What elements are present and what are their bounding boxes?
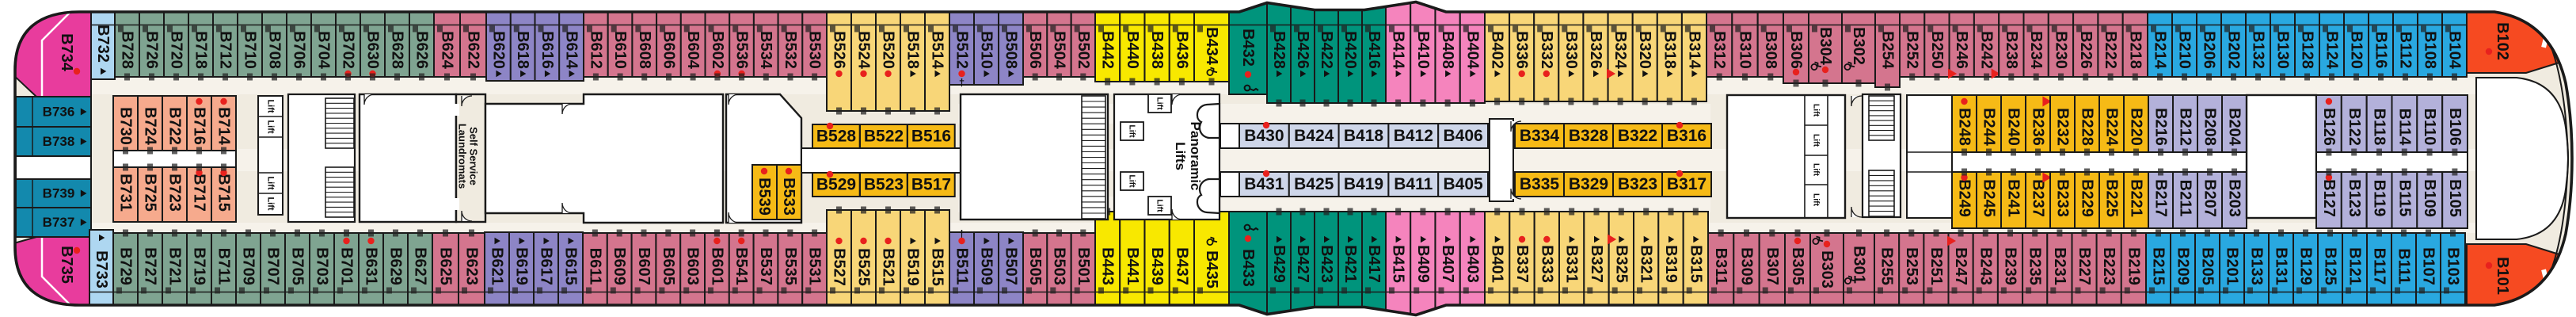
svg-text:B417: B417: [1365, 245, 1383, 283]
svg-text:B108: B108: [2422, 31, 2439, 69]
svg-text:B612: B612: [587, 31, 604, 69]
svg-text:B614: B614: [563, 31, 580, 70]
svg-text:B325: B325: [1612, 245, 1630, 283]
svg-text:B129: B129: [2297, 247, 2315, 285]
svg-text:B304: B304: [1817, 27, 1834, 66]
svg-text:B716: B716: [191, 107, 208, 145]
svg-text:B702: B702: [340, 31, 357, 69]
svg-text:B718: B718: [192, 31, 210, 69]
svg-text:B616: B616: [538, 31, 556, 69]
svg-text:Lift: Lift: [1155, 97, 1165, 110]
svg-text:B429: B429: [1270, 245, 1288, 283]
svg-text:B739: B739: [43, 186, 75, 201]
svg-text:B531: B531: [806, 247, 824, 285]
svg-text:B407: B407: [1439, 245, 1456, 283]
svg-text:B229: B229: [2079, 179, 2096, 217]
svg-text:B620: B620: [489, 31, 507, 69]
svg-text:B529: B529: [816, 176, 856, 194]
svg-text:B502: B502: [1075, 31, 1092, 69]
svg-text:B526: B526: [831, 31, 848, 69]
svg-text:B416: B416: [1365, 31, 1383, 69]
svg-text:B433: B433: [1239, 249, 1257, 287]
svg-text:B706: B706: [291, 31, 308, 69]
svg-text:B119: B119: [2371, 180, 2388, 217]
svg-text:B310: B310: [1737, 31, 1754, 69]
svg-text:B441: B441: [1124, 247, 1141, 285]
svg-text:B602: B602: [709, 31, 726, 69]
svg-text:B335: B335: [1520, 175, 1560, 193]
svg-text:B524: B524: [855, 31, 873, 70]
svg-text:B133: B133: [2248, 247, 2266, 285]
svg-text:B403: B403: [1463, 245, 1481, 283]
svg-text:B254: B254: [1879, 31, 1897, 70]
svg-text:Lift: Lift: [1812, 163, 1821, 177]
svg-text:B401: B401: [1489, 245, 1506, 283]
svg-text:B118: B118: [2371, 109, 2388, 146]
svg-text:B125: B125: [2322, 247, 2339, 285]
svg-text:B241: B241: [2005, 179, 2022, 217]
svg-text:B627: B627: [412, 247, 429, 285]
svg-text:B328: B328: [1569, 127, 1609, 145]
svg-text:B422: B422: [1318, 31, 1335, 69]
svg-text:B442: B442: [1099, 31, 1117, 69]
svg-text:B714: B714: [215, 107, 233, 146]
svg-text:B701: B701: [338, 247, 356, 285]
svg-text:B222: B222: [2102, 31, 2119, 69]
svg-text:B601: B601: [708, 247, 725, 285]
svg-text:B721: B721: [166, 247, 184, 285]
svg-text:B409: B409: [1414, 245, 1432, 283]
svg-text:B435: B435: [1203, 250, 1220, 288]
svg-text:B533: B533: [780, 178, 797, 216]
svg-text:B327: B327: [1588, 245, 1605, 283]
svg-text:B623: B623: [463, 247, 481, 285]
svg-text:B715: B715: [215, 174, 233, 212]
svg-text:B514: B514: [929, 31, 946, 70]
svg-text:B426: B426: [1294, 31, 1311, 69]
svg-text:B234: B234: [2027, 31, 2045, 70]
svg-text:B227: B227: [2076, 247, 2093, 285]
svg-text:B232: B232: [2054, 108, 2072, 146]
svg-text:B117: B117: [2371, 248, 2388, 285]
svg-text:B727: B727: [142, 247, 159, 285]
svg-text:B219: B219: [2125, 247, 2142, 285]
svg-text:B306: B306: [1787, 31, 1805, 69]
svg-text:B410: B410: [1414, 31, 1432, 69]
svg-text:B536: B536: [733, 31, 751, 69]
svg-text:B527: B527: [831, 248, 848, 286]
svg-text:B522: B522: [864, 128, 904, 146]
svg-text:B732: B732: [94, 25, 112, 63]
svg-text:B101: B101: [2494, 257, 2511, 295]
svg-text:B418: B418: [1344, 127, 1384, 145]
svg-text:B630: B630: [364, 31, 382, 69]
svg-text:B719: B719: [191, 247, 208, 285]
svg-text:B329: B329: [1569, 175, 1608, 193]
svg-text:B725: B725: [142, 174, 159, 212]
svg-text:B611: B611: [586, 248, 603, 285]
svg-text:B248: B248: [1956, 108, 1973, 146]
svg-text:B116: B116: [2372, 32, 2390, 69]
svg-text:B735: B735: [58, 246, 75, 284]
svg-text:B233: B233: [2054, 179, 2072, 217]
svg-text:B532: B532: [782, 31, 799, 69]
svg-text:B423: B423: [1318, 245, 1335, 283]
svg-text:Lift: Lift: [1155, 199, 1165, 212]
svg-text:B503: B503: [1051, 247, 1068, 285]
svg-text:B539: B539: [755, 178, 773, 216]
svg-text:B705: B705: [289, 247, 306, 285]
svg-text:B421: B421: [1341, 245, 1359, 283]
svg-text:Lift: Lift: [266, 120, 276, 133]
svg-text:B311: B311: [1712, 248, 1729, 285]
svg-text:B214: B214: [2152, 31, 2169, 70]
svg-text:B323: B323: [1618, 175, 1657, 193]
svg-text:Lift: Lift: [1128, 124, 1137, 138]
svg-text:B201: B201: [2224, 247, 2241, 285]
svg-text:Self ServiceLaundromats: Self ServiceLaundromats: [457, 124, 480, 189]
svg-text:B507: B507: [1003, 247, 1020, 285]
svg-text:B316: B316: [1667, 127, 1707, 145]
svg-text:B512: B512: [953, 31, 971, 69]
svg-text:B255: B255: [1878, 247, 1896, 285]
svg-text:B425: B425: [1294, 175, 1334, 193]
svg-text:B104: B104: [2446, 31, 2464, 70]
svg-text:B315: B315: [1687, 245, 1704, 283]
svg-text:B427: B427: [1294, 245, 1311, 283]
svg-text:B731: B731: [117, 174, 135, 212]
svg-text:B312: B312: [1710, 31, 1728, 69]
svg-text:B317: B317: [1667, 175, 1707, 193]
svg-text:B244: B244: [1981, 108, 1998, 147]
svg-text:B242: B242: [1978, 31, 1996, 69]
svg-text:B215: B215: [2150, 247, 2167, 285]
svg-text:B712: B712: [217, 31, 234, 69]
svg-text:B236: B236: [2030, 108, 2047, 146]
svg-text:B322: B322: [1618, 127, 1657, 145]
svg-text:B309: B309: [1738, 247, 1756, 285]
svg-text:B430: B430: [1244, 127, 1284, 145]
svg-text:B523: B523: [864, 176, 904, 194]
svg-text:B709: B709: [240, 247, 257, 285]
svg-text:B419: B419: [1344, 175, 1383, 193]
svg-text:B123: B123: [2346, 179, 2363, 217]
svg-text:B615: B615: [562, 247, 580, 285]
svg-text:B511: B511: [953, 248, 971, 285]
svg-text:B253: B253: [1903, 247, 1920, 285]
svg-text:B437: B437: [1173, 247, 1190, 285]
svg-text:B131: B131: [2273, 247, 2290, 285]
svg-text:B604: B604: [684, 31, 702, 70]
svg-text:B230: B230: [2053, 31, 2070, 69]
svg-text:B516: B516: [911, 128, 951, 146]
svg-text:B252: B252: [1904, 31, 1921, 69]
svg-text:B243: B243: [1977, 247, 1994, 285]
svg-text:B114: B114: [2395, 109, 2413, 147]
svg-text:B102: B102: [2494, 22, 2511, 60]
svg-text:B231: B231: [2051, 247, 2068, 285]
svg-text:B734: B734: [58, 33, 75, 72]
svg-text:B203: B203: [2226, 179, 2243, 217]
svg-text:B629: B629: [387, 247, 405, 285]
svg-text:B212: B212: [2177, 108, 2194, 146]
svg-text:B408: B408: [1439, 31, 1456, 69]
svg-text:B424: B424: [1294, 127, 1334, 145]
svg-text:B434: B434: [1203, 27, 1220, 66]
svg-text:B302: B302: [1850, 27, 1867, 65]
svg-text:B245: B245: [1981, 179, 1998, 217]
svg-text:B251: B251: [1927, 247, 1945, 285]
svg-text:B249: B249: [1956, 179, 1973, 217]
svg-text:B520: B520: [880, 31, 897, 69]
svg-text:B206: B206: [2201, 31, 2218, 69]
svg-text:B605: B605: [660, 247, 677, 285]
svg-text:B723: B723: [166, 174, 184, 212]
svg-text:B607: B607: [635, 247, 653, 285]
svg-text:B337: B337: [1513, 245, 1531, 283]
svg-text:Lift: Lift: [1812, 104, 1821, 117]
svg-text:B508: B508: [1003, 31, 1020, 69]
svg-text:B330: B330: [1562, 31, 1580, 69]
svg-text:B122: B122: [2346, 108, 2363, 146]
svg-text:B730: B730: [117, 107, 135, 145]
svg-text:B509: B509: [978, 247, 995, 285]
svg-text:B132: B132: [2250, 31, 2267, 69]
svg-text:B728: B728: [119, 31, 136, 69]
svg-text:B738: B738: [43, 134, 75, 149]
svg-text:B628: B628: [389, 31, 406, 69]
svg-text:B519: B519: [904, 248, 922, 286]
svg-text:B209: B209: [2175, 247, 2192, 285]
svg-text:B126: B126: [2320, 108, 2338, 146]
svg-text:B324: B324: [1611, 31, 1629, 70]
svg-text:B124: B124: [2323, 31, 2341, 70]
svg-text:B530: B530: [806, 31, 824, 69]
svg-text:B224: B224: [2103, 108, 2121, 147]
svg-text:B250: B250: [1928, 31, 1946, 69]
svg-text:B332: B332: [1538, 31, 1555, 69]
svg-text:Lift: Lift: [1128, 174, 1137, 188]
svg-text:B121: B121: [2346, 247, 2364, 285]
svg-text:B228: B228: [2079, 108, 2096, 146]
svg-text:B120: B120: [2348, 31, 2365, 69]
svg-text:B625: B625: [437, 247, 455, 285]
svg-text:B103: B103: [2445, 247, 2462, 285]
svg-text:B608: B608: [636, 31, 653, 69]
svg-text:B506: B506: [1026, 31, 1044, 69]
svg-text:B210: B210: [2176, 31, 2194, 69]
svg-text:B501: B501: [1075, 247, 1092, 285]
svg-text:Lift: Lift: [266, 197, 276, 210]
svg-text:B326: B326: [1587, 31, 1604, 69]
svg-text:B112: B112: [2397, 32, 2414, 69]
svg-text:B331: B331: [1563, 245, 1581, 283]
svg-text:B440: B440: [1124, 31, 1141, 69]
svg-text:B414: B414: [1390, 31, 1407, 70]
svg-text:B619: B619: [513, 247, 531, 285]
svg-text:B305: B305: [1789, 247, 1806, 285]
svg-text:B246: B246: [1953, 31, 1970, 69]
svg-text:†: †: [959, 77, 965, 89]
svg-text:B518: B518: [904, 31, 922, 69]
svg-text:B237: B237: [2030, 179, 2047, 217]
svg-text:B707: B707: [264, 247, 282, 285]
svg-text:B218: B218: [2126, 31, 2144, 69]
svg-text:B726: B726: [143, 31, 161, 69]
svg-text:B621: B621: [489, 247, 506, 285]
svg-text:B225: B225: [2103, 179, 2121, 217]
svg-text:B333: B333: [1538, 245, 1555, 283]
svg-text:B318: B318: [1661, 31, 1678, 69]
svg-text:B111: B111: [2395, 248, 2413, 285]
svg-text:B610: B610: [611, 31, 629, 69]
svg-text:B106: B106: [2446, 108, 2464, 146]
svg-text:Lift: Lift: [1812, 134, 1821, 147]
svg-text:B609: B609: [611, 247, 628, 285]
svg-text:B431: B431: [1244, 175, 1284, 193]
svg-text:B724: B724: [142, 107, 159, 146]
svg-text:B631: B631: [363, 247, 380, 285]
svg-text:B235: B235: [2026, 247, 2044, 285]
svg-text:B420: B420: [1341, 31, 1359, 69]
svg-text:B535: B535: [782, 247, 799, 285]
svg-text:Lift: Lift: [1812, 193, 1821, 207]
svg-text:B301: B301: [1851, 246, 1868, 284]
svg-text:B319: B319: [1662, 245, 1680, 283]
svg-text:B515: B515: [929, 248, 946, 286]
svg-text:B606: B606: [660, 31, 678, 69]
svg-text:B737: B737: [43, 215, 75, 230]
svg-text:B717: B717: [191, 174, 208, 212]
svg-text:B622: B622: [465, 31, 482, 69]
svg-text:B517: B517: [911, 176, 951, 194]
svg-text:B208: B208: [2201, 108, 2219, 146]
svg-text:B436: B436: [1173, 31, 1190, 69]
svg-text:B617: B617: [538, 247, 555, 285]
svg-text:B107: B107: [2420, 247, 2437, 285]
svg-text:B130: B130: [2274, 31, 2292, 69]
svg-text:B336: B336: [1513, 31, 1531, 69]
svg-text:B202: B202: [2225, 31, 2243, 69]
svg-text:B534: B534: [757, 31, 774, 70]
svg-text:B708: B708: [266, 31, 283, 69]
svg-text:B109: B109: [2421, 179, 2438, 217]
svg-text:B226: B226: [2077, 31, 2095, 69]
svg-text:B438: B438: [1148, 31, 1166, 69]
svg-text:B239: B239: [2002, 247, 2019, 285]
svg-text:B205: B205: [2199, 247, 2216, 285]
svg-text:B308: B308: [1762, 31, 1779, 69]
svg-text:B412: B412: [1394, 127, 1433, 145]
svg-text:B204: B204: [2226, 108, 2243, 147]
svg-text:B704: B704: [315, 31, 333, 70]
svg-text:B439: B439: [1148, 247, 1166, 285]
svg-text:B733: B733: [93, 250, 110, 288]
svg-text:Lift: Lift: [266, 176, 276, 189]
svg-text:B722: B722: [166, 107, 184, 145]
svg-text:B510: B510: [978, 31, 995, 69]
svg-text:B402: B402: [1489, 31, 1506, 69]
svg-text:B240: B240: [2005, 108, 2022, 146]
svg-text:B223: B223: [2100, 247, 2117, 285]
svg-text:B729: B729: [117, 247, 135, 285]
svg-text:B521: B521: [880, 248, 897, 286]
svg-text:B220: B220: [2128, 108, 2145, 146]
svg-text:B320: B320: [1636, 31, 1653, 69]
svg-text:B314: B314: [1685, 31, 1703, 70]
svg-text:B105: B105: [2446, 179, 2464, 217]
svg-text:B207: B207: [2201, 179, 2219, 217]
svg-text:B127: B127: [2320, 179, 2338, 217]
svg-text:B128: B128: [2299, 31, 2316, 69]
svg-text:B541: B541: [732, 247, 750, 285]
svg-text:B428: B428: [1270, 31, 1288, 69]
svg-text:B505: B505: [1026, 247, 1044, 285]
svg-text:B307: B307: [1764, 247, 1781, 285]
svg-text:B710: B710: [242, 31, 259, 69]
svg-text:B217: B217: [2152, 179, 2170, 217]
svg-text:B720: B720: [168, 31, 185, 69]
svg-text:B303: B303: [1818, 250, 1836, 288]
svg-text:B603: B603: [684, 247, 702, 285]
svg-text:B525: B525: [855, 248, 873, 286]
svg-text:B626: B626: [413, 31, 431, 69]
svg-text:B624: B624: [439, 31, 456, 70]
svg-text:B411: B411: [1394, 175, 1433, 193]
svg-text:B404: B404: [1463, 31, 1481, 70]
svg-text:B618: B618: [514, 31, 531, 69]
svg-text:B443: B443: [1099, 247, 1117, 285]
svg-text:B736: B736: [43, 105, 75, 120]
svg-text:B238: B238: [2003, 31, 2020, 69]
svg-text:B537: B537: [757, 247, 774, 285]
svg-text:B504: B504: [1051, 31, 1068, 70]
svg-text:B216: B216: [2152, 108, 2170, 146]
svg-text:B528: B528: [816, 128, 857, 146]
svg-text:B321: B321: [1638, 245, 1655, 283]
svg-text:Lift: Lift: [266, 99, 276, 113]
svg-text:B432: B432: [1239, 29, 1257, 67]
svg-text:B110: B110: [2421, 109, 2438, 146]
svg-text:B711: B711: [215, 248, 233, 285]
svg-text:B221: B221: [2128, 179, 2145, 217]
svg-text:B406: B406: [1443, 127, 1482, 145]
svg-text:B247: B247: [1952, 247, 1969, 285]
svg-text:B211: B211: [2177, 180, 2194, 217]
svg-text:B703: B703: [314, 247, 331, 285]
svg-text:B415: B415: [1390, 245, 1407, 283]
svg-text:B115: B115: [2395, 180, 2413, 217]
svg-text:B334: B334: [1520, 127, 1560, 145]
svg-text:B405: B405: [1443, 175, 1483, 193]
